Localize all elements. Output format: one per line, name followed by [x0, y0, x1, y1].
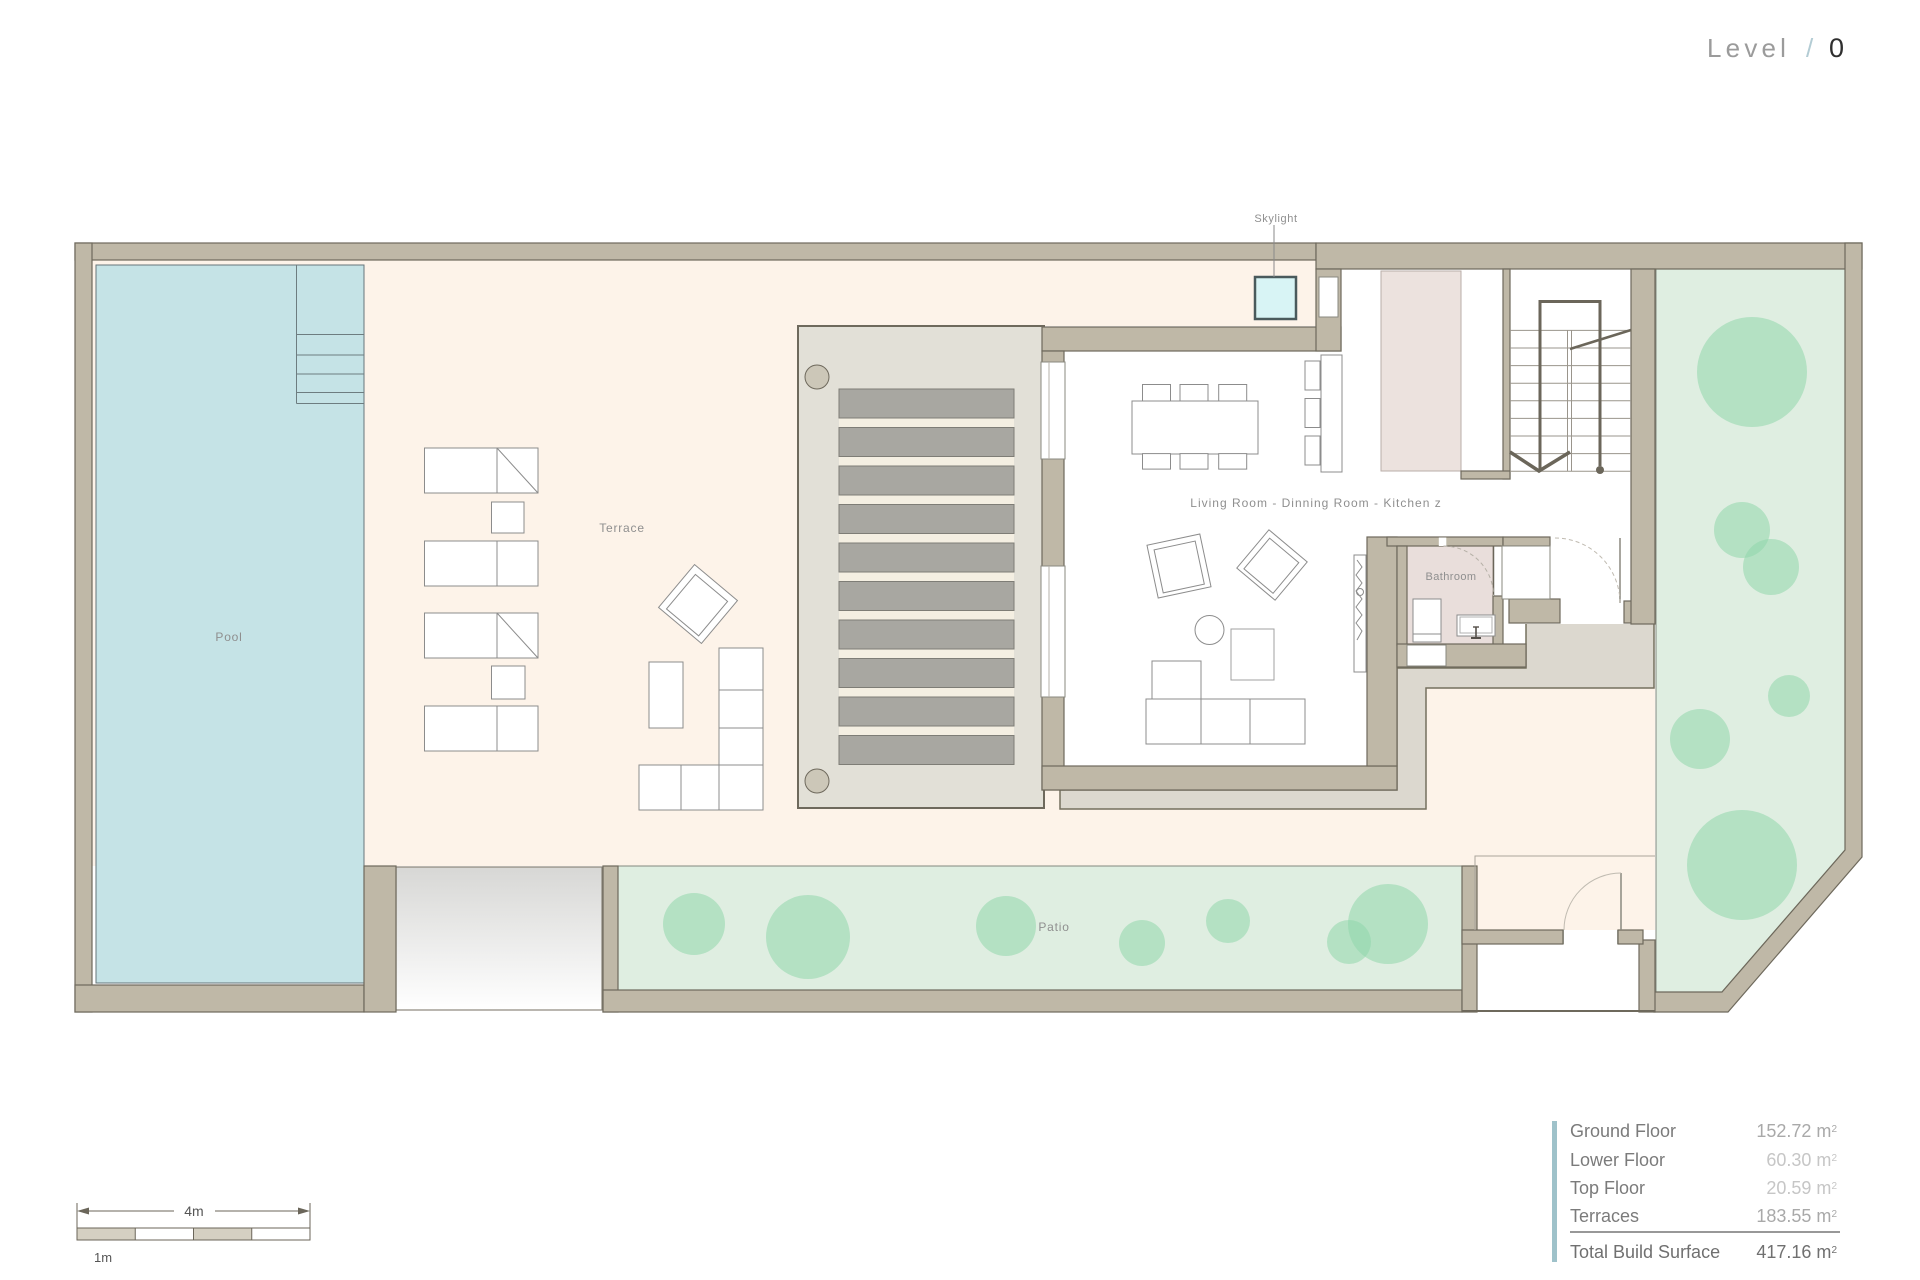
svg-text:183.55 m2: 183.55 m2	[1756, 1206, 1837, 1226]
svg-text:0: 0	[1829, 33, 1844, 63]
svg-text:Lower Floor: Lower Floor	[1570, 1150, 1665, 1170]
svg-text:Ground Floor: Ground Floor	[1570, 1121, 1676, 1141]
svg-text:Top Floor: Top Floor	[1570, 1178, 1645, 1198]
svg-text:Living Room - Dinning Room - K: Living Room - Dinning Room - Kitchen z	[1190, 496, 1441, 510]
svg-text:60.30 m2: 60.30 m2	[1766, 1150, 1837, 1170]
svg-text:Total Build Surface: Total Build Surface	[1570, 1242, 1720, 1262]
svg-text:4m: 4m	[184, 1203, 203, 1219]
svg-text:Bathroom: Bathroom	[1426, 571, 1477, 583]
svg-text:20.59 m2: 20.59 m2	[1766, 1178, 1837, 1198]
svg-text:1m: 1m	[94, 1250, 112, 1265]
svg-text:152.72 m2: 152.72 m2	[1756, 1121, 1837, 1141]
svg-text:Terrace: Terrace	[599, 521, 645, 535]
svg-text:Terraces: Terraces	[1570, 1206, 1639, 1226]
svg-text:Patio: Patio	[1038, 920, 1069, 934]
svg-text:417.16 m2: 417.16 m2	[1756, 1242, 1837, 1262]
svg-text:/: /	[1806, 33, 1814, 63]
svg-text:Pool: Pool	[215, 630, 242, 644]
svg-text:Level: Level	[1707, 33, 1790, 63]
svg-text:Skylight: Skylight	[1254, 213, 1297, 225]
